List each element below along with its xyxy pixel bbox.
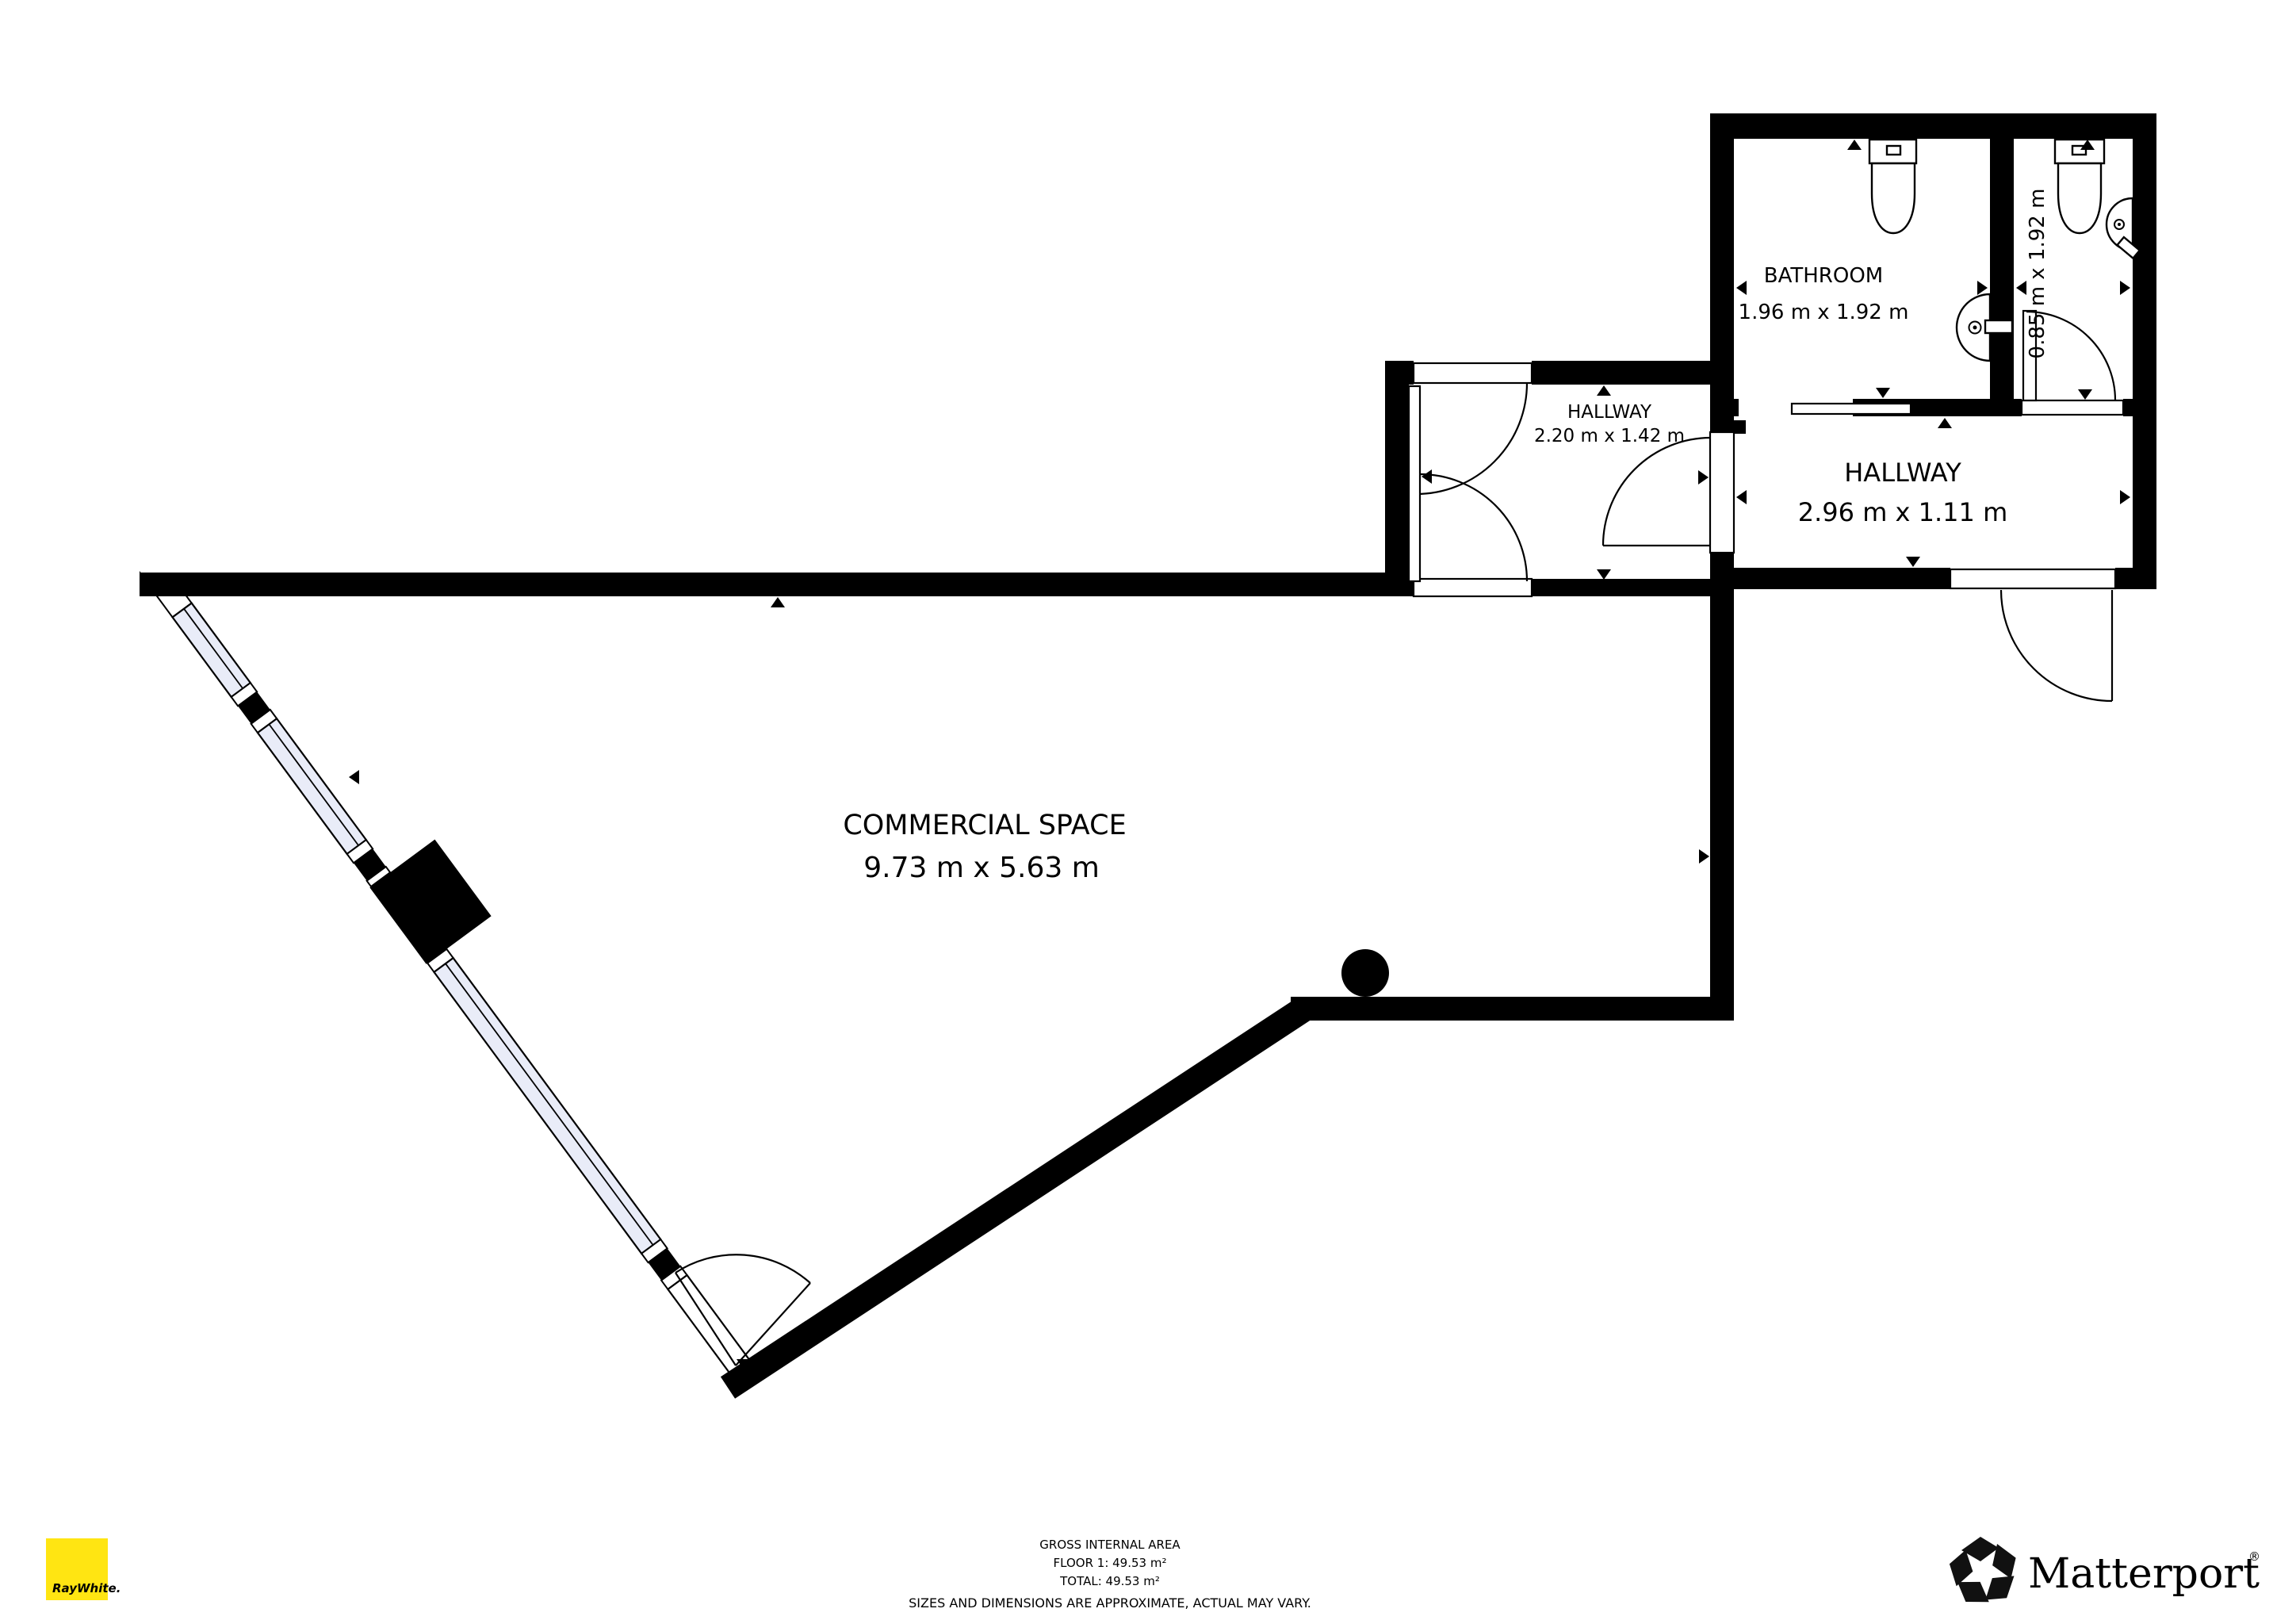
floor-plan-canvas: COMMERCIAL SPACE 9.73 m x 5.63 m BATHROO… <box>0 0 2296 1624</box>
gross-internal-area-title: GROSS INTERNAL AREA <box>1039 1538 1181 1552</box>
wall-nub <box>1734 420 1746 434</box>
south-wall <box>1291 997 1734 1021</box>
provider-logo-icon <box>1944 1537 2022 1613</box>
scan-point-marker <box>1341 949 1389 997</box>
label-hallway-small-dims: 2.20 m x 1.42 m <box>1534 426 1685 446</box>
label-commercial-space-name: COMMERCIAL SPACE <box>843 810 1126 841</box>
label-hallway-main-name: HALLWAY <box>1844 458 1961 488</box>
wc-door-sill <box>2022 400 2123 415</box>
agency-logo: RayWhite. <box>46 1538 121 1600</box>
hall-small-west-wall <box>1385 361 1409 596</box>
total-area-line: TOTAL: 49.53 m² <box>1059 1574 1160 1588</box>
diagonal-wall <box>728 1009 1304 1388</box>
exterior-door-sill <box>1950 569 2115 588</box>
provider-logo-text: Matterport <box>2028 1550 2260 1598</box>
label-commercial-space-dims: 9.73 m x 5.63 m <box>863 852 1100 884</box>
label-bathroom-dims: 1.96 m x 1.92 m <box>1739 301 1909 324</box>
label-hallway-main-dims: 2.96 m x 1.11 m <box>1798 497 2007 527</box>
hall-connecting-door-opening <box>1710 432 1734 553</box>
disclaimer-text: SIZES AND DIMENSIONS ARE APPROXIMATE, AC… <box>909 1595 1311 1611</box>
block-west-wall <box>1710 113 1734 432</box>
room-labels: COMMERCIAL SPACE 9.73 m x 5.63 m BATHROO… <box>843 189 2049 884</box>
pillar <box>369 840 491 964</box>
provider-logo: Matterport ® <box>1944 1537 2260 1613</box>
toilet-icon <box>1869 140 1916 233</box>
agency-logo-text: RayWhite. <box>52 1581 121 1595</box>
bathroom-sliding-door-panel <box>1792 404 1911 414</box>
footer: GROSS INTERNAL AREA FLOOR 1: 49.53 m² TO… <box>909 1538 1311 1611</box>
hall-small-south-door-sill <box>1414 579 1532 596</box>
hall-small-south-door-leaf <box>1409 386 1420 581</box>
hall-small-exterior-door-sill <box>1414 363 1532 383</box>
north-wall <box>140 573 1414 596</box>
main-exterior-door-arc <box>2001 590 2112 701</box>
hall-connecting-door-arc <box>1603 438 1711 546</box>
hall-small-south-door-arc <box>1420 474 1527 581</box>
floor-area-line: FLOOR 1: 49.53 m² <box>1054 1556 1167 1570</box>
label-bathroom-name: BATHROOM <box>1764 264 1883 288</box>
window-wall <box>155 549 800 1382</box>
label-hallway-small-name: HALLWAY <box>1567 402 1652 423</box>
hall-small-exterior-door-arc <box>1416 383 1527 494</box>
toilet-icon <box>2055 140 2104 233</box>
bathroom-wc-partition <box>1990 139 2014 400</box>
block-north-wall <box>1710 113 2156 139</box>
east-wall <box>1710 589 1734 1021</box>
provider-registered-mark: ® <box>2248 1549 2260 1564</box>
block-east-wall <box>2133 113 2156 589</box>
label-wc-dims: 0.85 m x 1.92 m <box>2026 189 2049 359</box>
floor-plan-page: COMMERCIAL SPACE 9.73 m x 5.63 m BATHROO… <box>0 0 2296 1624</box>
